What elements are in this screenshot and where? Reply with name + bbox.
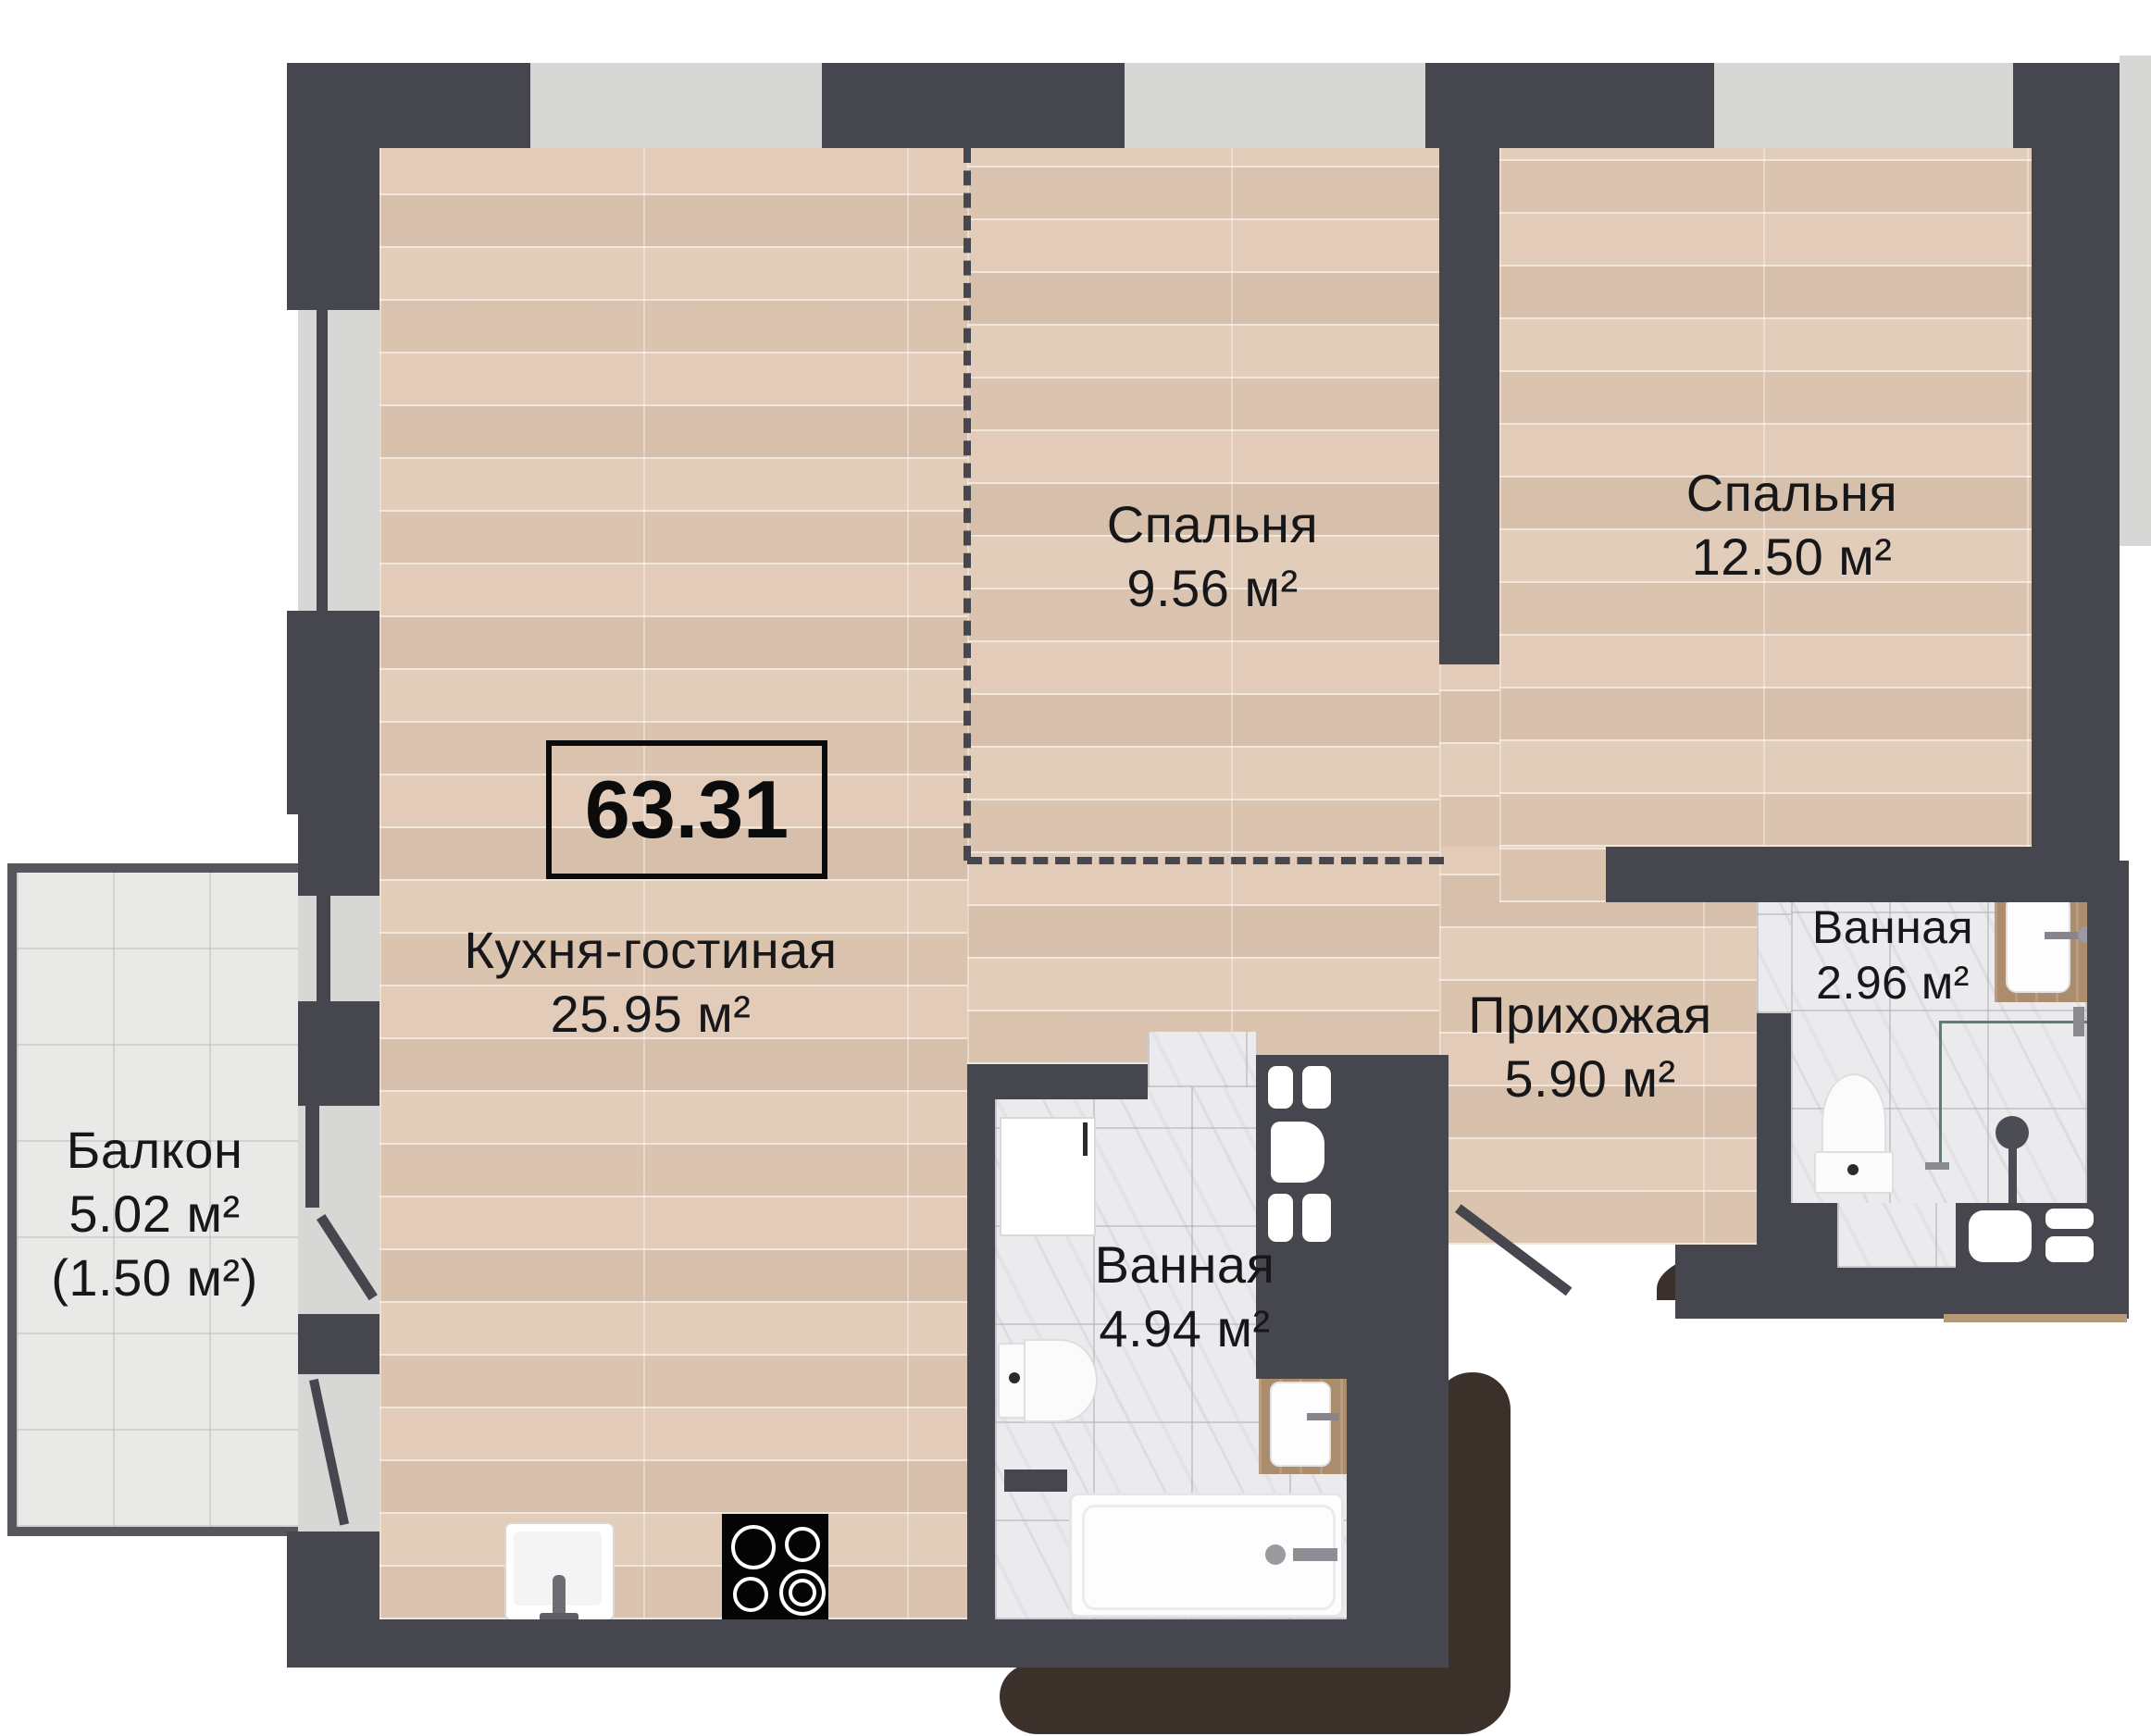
wall-bottom bbox=[287, 1619, 1449, 1668]
balcony-pier-b bbox=[298, 1001, 379, 1106]
room-area: 2.96 м² bbox=[1812, 955, 1973, 1011]
window-left-upper bbox=[298, 310, 379, 611]
shower-glass-horizontal bbox=[1939, 1021, 2087, 1023]
room-area: 4.94 м² bbox=[1095, 1296, 1275, 1360]
washbasin-main bbox=[1270, 1382, 1331, 1467]
room-name: Ванная bbox=[1095, 1233, 1275, 1296]
room-area: 9.56 м² bbox=[1107, 556, 1319, 620]
shower-head-icon bbox=[1986, 1107, 2097, 1209]
toilet-bowl bbox=[1024, 1339, 1098, 1422]
window-bedroom-large bbox=[1714, 63, 2013, 148]
cooktop-stove bbox=[722, 1514, 828, 1619]
building-shadow-bottom bbox=[1000, 1664, 1511, 1734]
shaft-slot bbox=[2045, 1209, 2094, 1229]
room-name: Прихожая bbox=[1468, 983, 1712, 1047]
wall-bathroom-second-left bbox=[1757, 1013, 1791, 1208]
shaft-slot bbox=[1969, 1210, 2032, 1262]
wall-bathroom-main-left bbox=[967, 1064, 995, 1668]
shower-glass-handle bbox=[1925, 1162, 1949, 1170]
total-area-box: 63.31 bbox=[546, 740, 827, 879]
balcony-pier-c bbox=[298, 1314, 379, 1374]
washbasin-faucet-icon bbox=[2045, 932, 2082, 939]
threshold-strip bbox=[1944, 1314, 2127, 1322]
toilet-main bbox=[998, 1339, 1095, 1419]
room-name: Ванная bbox=[1812, 899, 1973, 955]
washbasin-faucet-icon bbox=[1307, 1413, 1338, 1420]
room-label-kitchen-living: Кухня-гостиная 25.95 м² bbox=[464, 918, 837, 1046]
shower-glass-vertical bbox=[1939, 1021, 1942, 1169]
wall-left-mid bbox=[287, 611, 379, 814]
room-label-bathroom-main: Ванная 4.94 м² bbox=[1095, 1233, 1275, 1360]
room-label-bedroom-large: Спальня 12.50 м² bbox=[1686, 461, 1898, 589]
balcony-window-a bbox=[298, 896, 379, 1001]
room-label-balcony: Балкон 5.02 м² (1.50 м²) bbox=[51, 1118, 258, 1309]
bathtub-drain-icon bbox=[1265, 1544, 1286, 1565]
shaft-slot bbox=[1268, 1066, 1293, 1109]
floor-bedroom-large-doorway bbox=[1499, 847, 1606, 902]
floor-bathroom-second-doorway bbox=[1757, 902, 1791, 1013]
shaft-slot bbox=[1271, 1122, 1324, 1183]
room-name: Спальня bbox=[1686, 461, 1898, 525]
room-area-reduced: (1.50 м²) bbox=[51, 1246, 258, 1309]
wall-bathroom-main-top bbox=[967, 1064, 1148, 1099]
washer-detail bbox=[1083, 1122, 1088, 1156]
bathtub bbox=[1069, 1493, 1344, 1618]
room-label-bedroom-small: Спальня 9.56 м² bbox=[1107, 492, 1319, 620]
wall-bedroom-large-bottom bbox=[1606, 847, 2120, 902]
room-name: Балкон bbox=[51, 1118, 258, 1182]
burner-icon bbox=[733, 1577, 768, 1612]
shaft-slot bbox=[1302, 1066, 1331, 1109]
dashed-partition-vertical bbox=[964, 148, 971, 861]
room-area: 5.90 м² bbox=[1468, 1047, 1712, 1110]
washbasin-second bbox=[2006, 895, 2070, 993]
niche-marble-strip bbox=[1837, 1203, 1956, 1268]
shower-pipe bbox=[2008, 1144, 2017, 1205]
room-name: Спальня bbox=[1107, 492, 1319, 556]
room-name: Кухня-гостиная bbox=[464, 918, 837, 982]
toilet-button bbox=[1847, 1164, 1859, 1175]
balcony-pier-a bbox=[298, 814, 379, 896]
total-area-value: 63.31 bbox=[585, 763, 789, 857]
burner-icon bbox=[731, 1525, 776, 1569]
wall-bathroom-main-right bbox=[1347, 1055, 1449, 1668]
kitchen-sink bbox=[504, 1522, 615, 1621]
dashed-partition-horizontal bbox=[967, 857, 1444, 864]
wall-between-bedrooms bbox=[1439, 148, 1499, 664]
floor-plan-canvas: 63.31 Кухня-гостиная 25.95 м² Спальня 9.… bbox=[0, 0, 2151, 1736]
window-left-upper-frame bbox=[317, 310, 328, 611]
window-kitchen bbox=[530, 63, 822, 148]
wall-left-upper bbox=[287, 63, 379, 310]
bathtub-faucet-icon bbox=[1293, 1548, 1337, 1561]
burner-icon bbox=[789, 1579, 816, 1606]
shaft-slot bbox=[1302, 1194, 1331, 1242]
vanity-counter-main bbox=[1259, 1372, 1347, 1474]
floor-bathroom-main-doorway bbox=[1148, 1032, 1256, 1087]
wall-left-bottom bbox=[287, 1531, 379, 1619]
washing-machine bbox=[1000, 1117, 1096, 1236]
floor-kitchen-living bbox=[379, 148, 967, 1619]
neighbor-sill-top-right bbox=[2120, 56, 2151, 546]
balcony-window-a-frame bbox=[317, 896, 330, 1001]
window-bedroom-small bbox=[1125, 63, 1425, 148]
burner-icon bbox=[785, 1527, 820, 1562]
shaft-slot bbox=[2045, 1236, 2094, 1262]
room-area: 12.50 м² bbox=[1686, 525, 1898, 589]
wall-bathroom-main-stub bbox=[1004, 1469, 1067, 1492]
toilet-button bbox=[1009, 1372, 1020, 1383]
toilet-second bbox=[1814, 1073, 1890, 1192]
room-area: 25.95 м² bbox=[464, 982, 837, 1046]
balcony-window-b-frame bbox=[305, 1106, 319, 1208]
wall-right-upper bbox=[2032, 63, 2120, 847]
wall-hallway-bottom-stub bbox=[1675, 1245, 1757, 1319]
room-label-bathroom-second: Ванная 2.96 м² bbox=[1812, 899, 1973, 1011]
room-label-hallway: Прихожая 5.90 м² bbox=[1468, 983, 1712, 1110]
toilet-bowl bbox=[1822, 1073, 1886, 1162]
room-area: 5.02 м² bbox=[51, 1182, 258, 1246]
shower-glass-clamp bbox=[2073, 1007, 2084, 1036]
floor-passage bbox=[1439, 664, 1499, 849]
